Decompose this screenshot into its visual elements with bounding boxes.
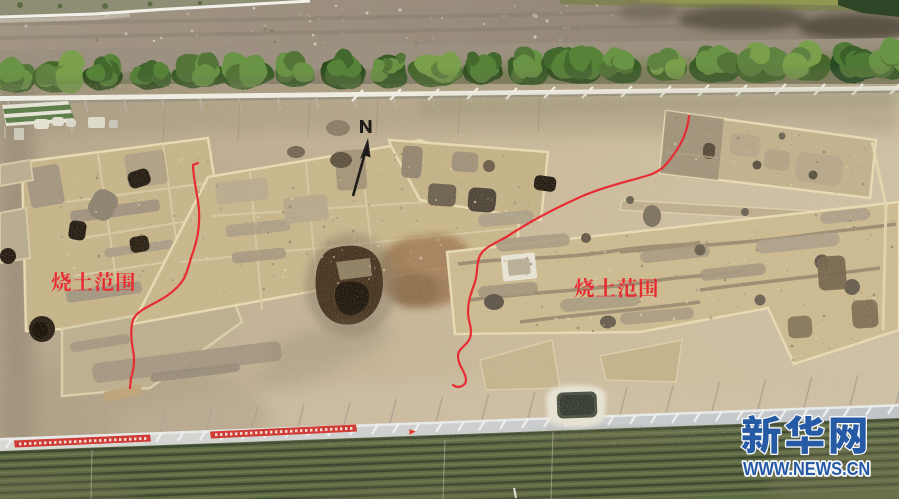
svg-text:WWW.NEWS.CN: WWW.NEWS.CN — [743, 458, 870, 479]
